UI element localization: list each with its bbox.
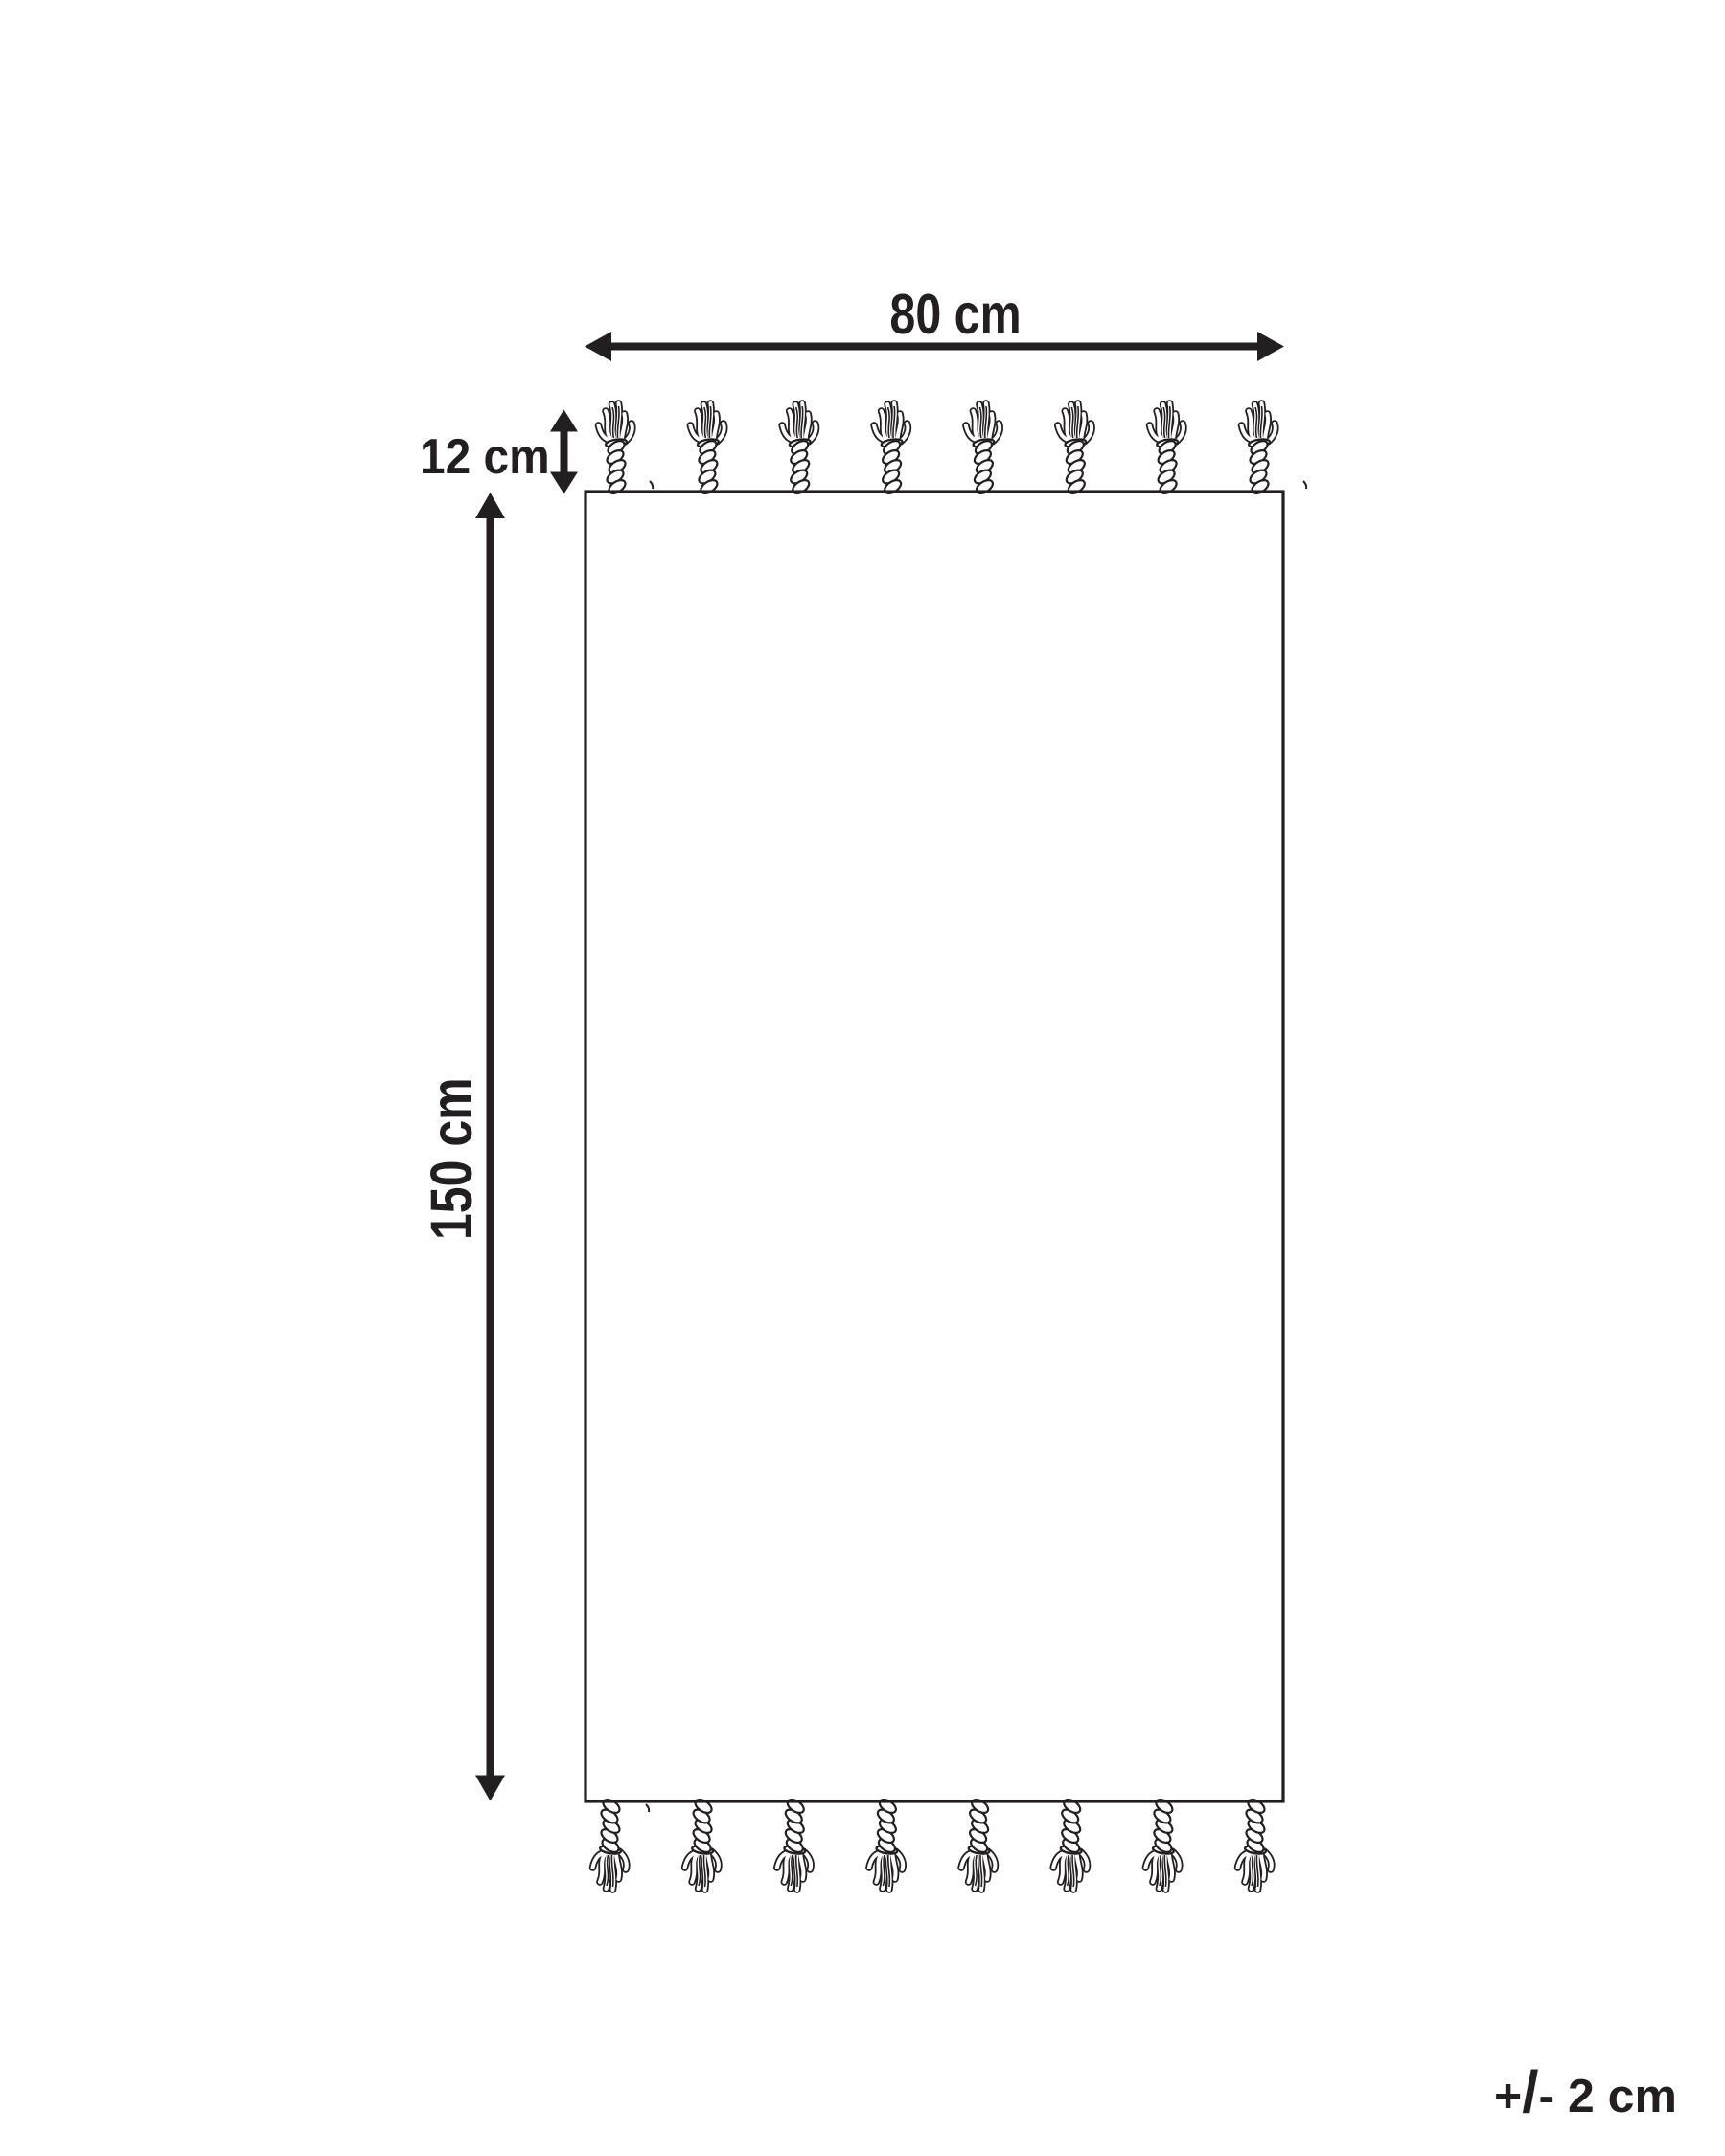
svg-text:80 cm: 80 cm xyxy=(889,284,1021,347)
svg-text:12 cm: 12 cm xyxy=(420,428,550,484)
svg-text:+/- 2 cm: +/- 2 cm xyxy=(1494,2060,1677,2125)
svg-text:150 cm: 150 cm xyxy=(419,1077,484,1240)
